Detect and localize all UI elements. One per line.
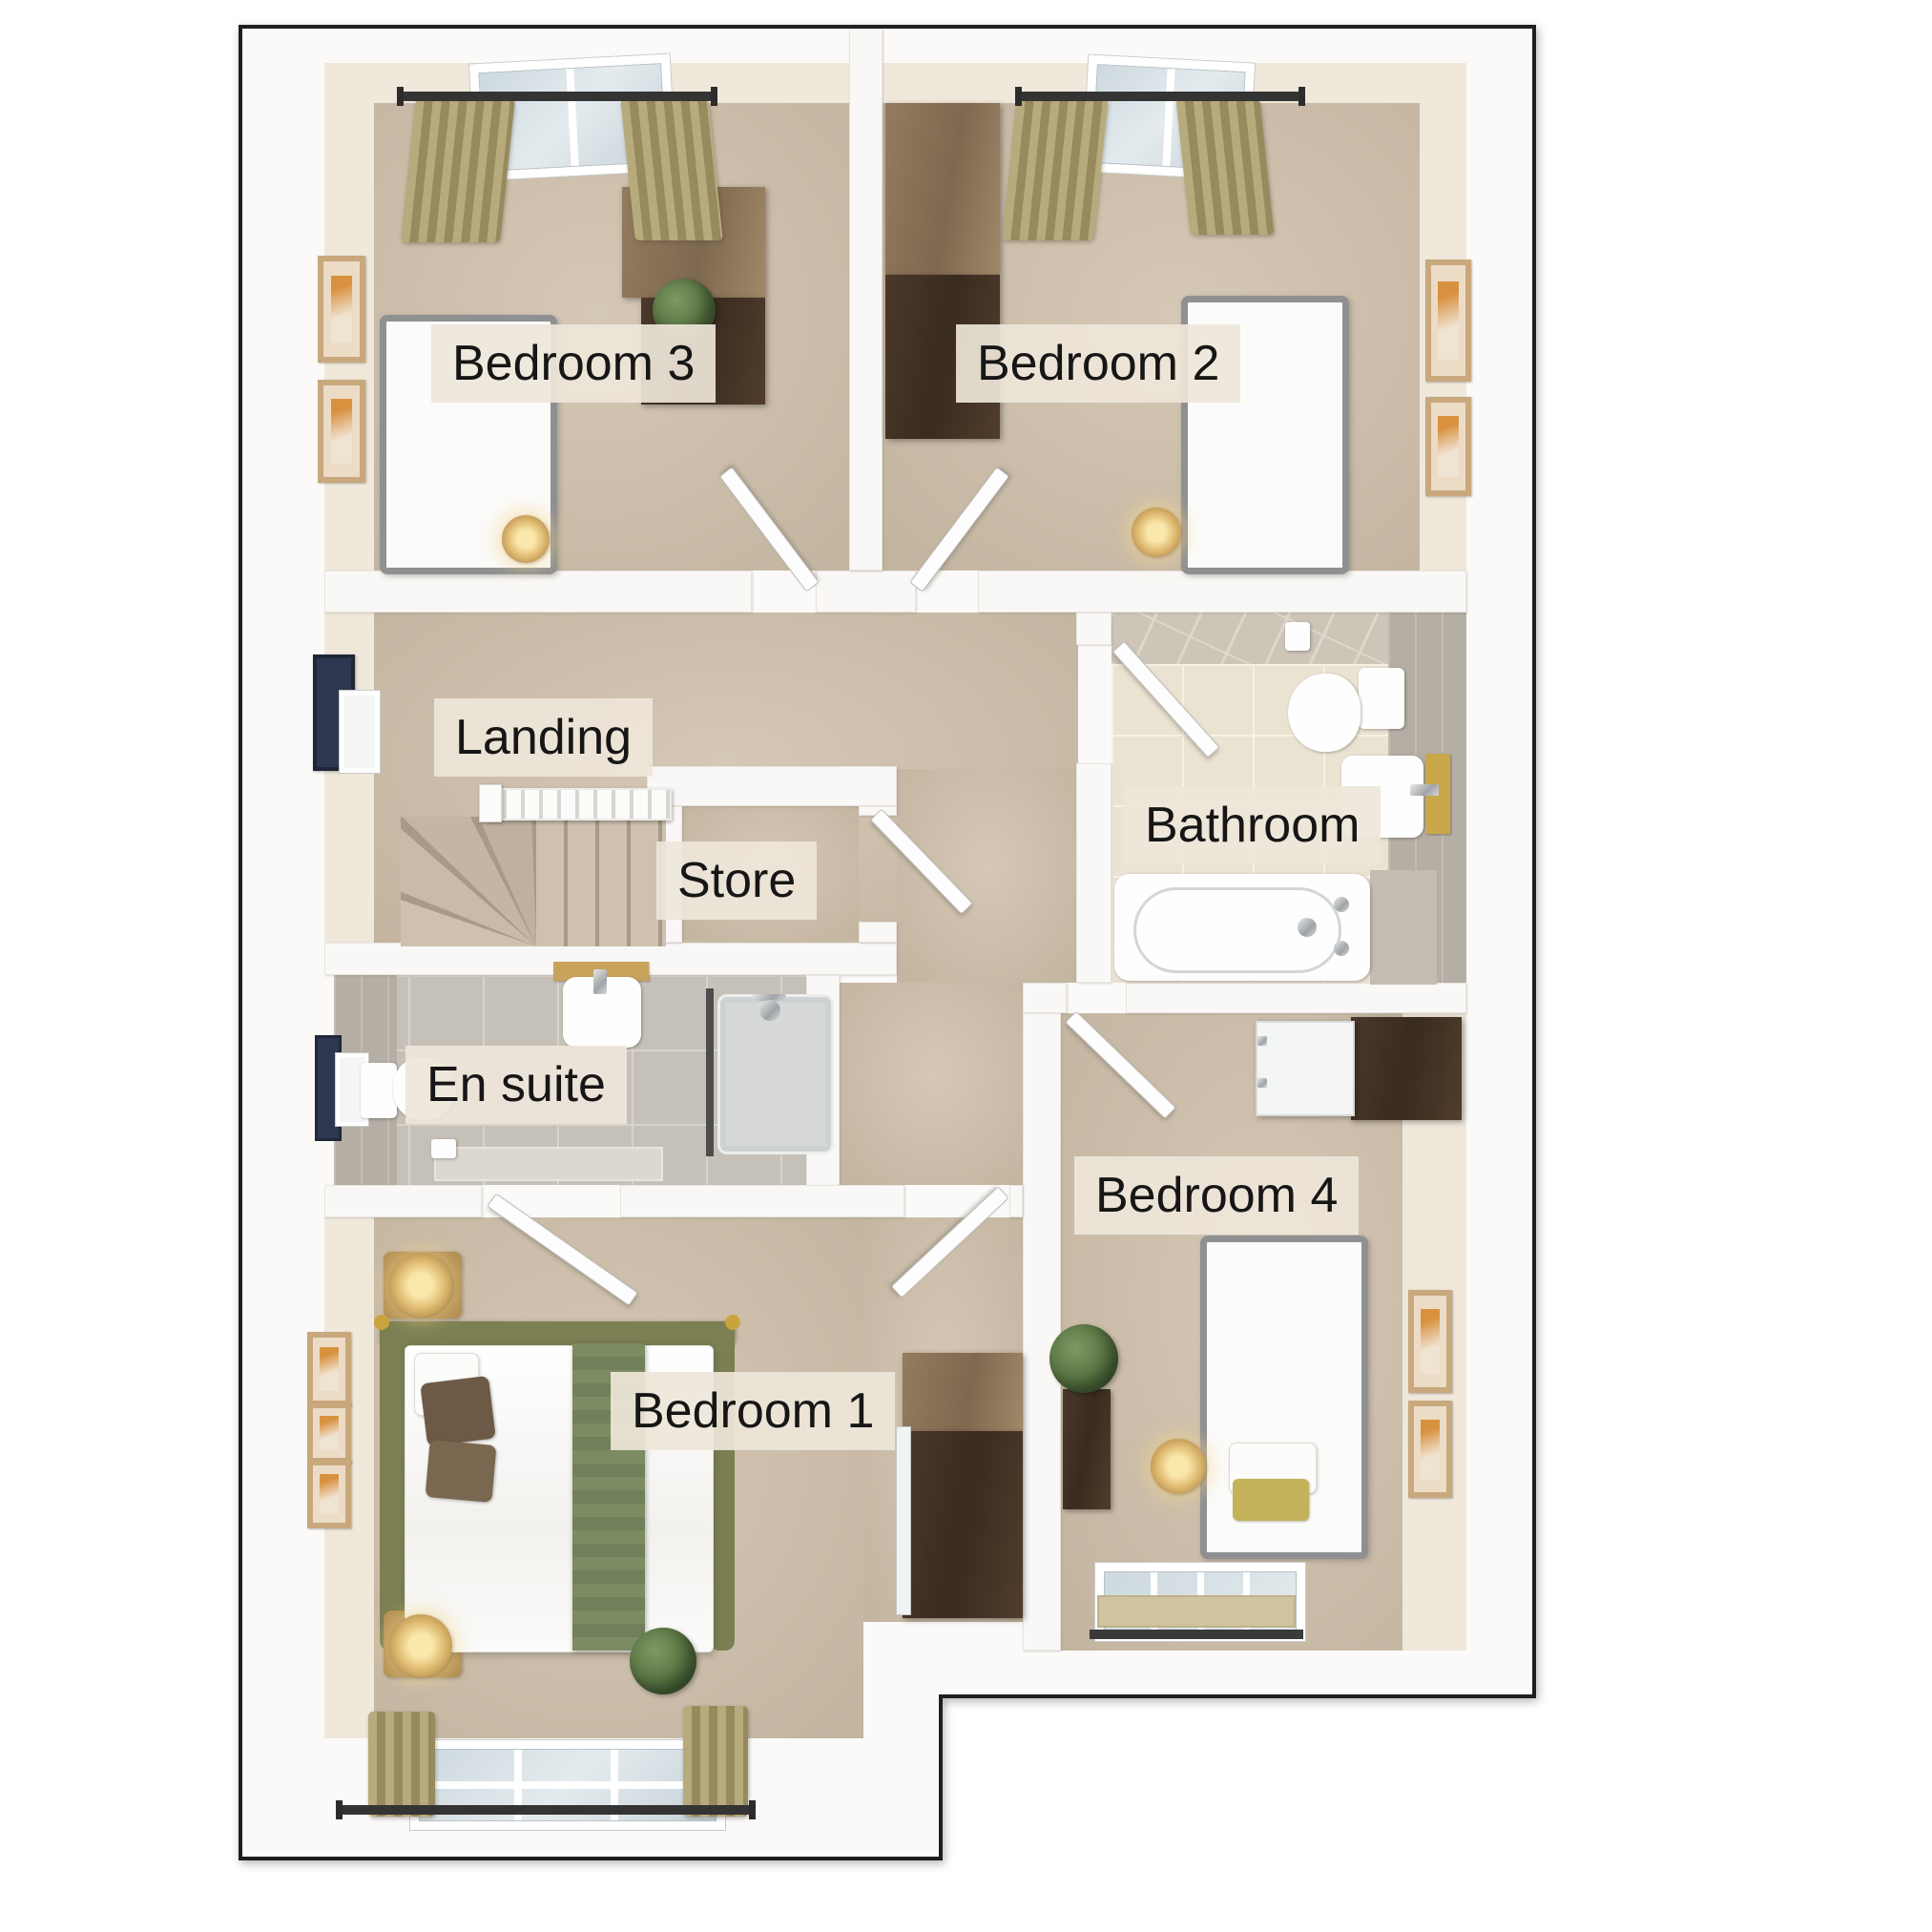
bedroom-4-picture-2 xyxy=(1408,1401,1452,1498)
bedroom-1-bed-rail-left xyxy=(380,1321,405,1651)
bedroom-1-finial-left xyxy=(374,1315,389,1330)
bathroom-bath-surround xyxy=(1370,870,1437,985)
bedroom-1-picture-3 xyxy=(307,1460,351,1528)
en-suite-toilet-roll-holder xyxy=(431,1139,456,1158)
bedroom-3-picture-1 xyxy=(318,256,365,363)
bedroom-3-picture-2 xyxy=(318,380,365,483)
bedroom-1-finial-right xyxy=(725,1315,740,1330)
bedroom-4-dresser-mirror-doors xyxy=(1256,1021,1355,1116)
bedroom-1-lamp-bottom xyxy=(389,1614,452,1677)
bedroom-1-headboard xyxy=(380,1321,735,1348)
room-label-store: Store xyxy=(656,841,817,920)
bedroom-2-curtain-left xyxy=(1002,99,1109,240)
bedroom-4-picture-1 xyxy=(1408,1290,1452,1393)
bedroom-1-curtain-rod xyxy=(340,1805,752,1815)
en-suite-door xyxy=(487,1194,638,1306)
bedroom-1-picture-1 xyxy=(307,1332,351,1406)
en-suite-toilet-cistern xyxy=(361,1063,397,1118)
bedroom-1-curtain-right xyxy=(683,1706,748,1817)
bedroom-1-picture-2 xyxy=(307,1402,351,1464)
bedroom-3-door xyxy=(719,467,820,592)
bathroom-bath-tap-2 xyxy=(1334,941,1349,956)
bedroom-4-plant xyxy=(1049,1324,1118,1393)
bedroom-2-picture-2 xyxy=(1425,397,1471,496)
bedroom-4-window-sill xyxy=(1090,1630,1303,1639)
bedroom-4-dresser-wood xyxy=(1351,1017,1462,1120)
bedroom-1-wardrobe-top xyxy=(903,1353,1023,1431)
bedroom-1-wardrobe-mirror xyxy=(897,1427,910,1614)
bathroom-toilet-bowl xyxy=(1288,674,1361,752)
bedroom-4-dresser-hinge-1 xyxy=(1257,1036,1267,1046)
room-label-bathroom: Bathroom xyxy=(1124,786,1381,864)
room-label-landing: Landing xyxy=(434,698,653,777)
bedroom-2-door xyxy=(909,467,1009,592)
bathroom-bath-drain xyxy=(1298,918,1317,937)
bathroom-door xyxy=(1112,641,1220,758)
bedroom-1-wardrobe xyxy=(903,1431,1023,1618)
room-label-bedroom-2: Bedroom 2 xyxy=(956,324,1240,403)
bathroom-bath-tap-1 xyxy=(1334,897,1349,912)
bedroom-1-lamp-top xyxy=(389,1254,452,1317)
bedroom-1-cushion-1 xyxy=(420,1376,496,1446)
landing-window xyxy=(340,691,380,773)
room-label-bedroom-4: Bedroom 4 xyxy=(1074,1156,1359,1235)
room-label-en-suite: En suite xyxy=(405,1046,627,1124)
bedroom-4-door xyxy=(1065,1010,1176,1119)
bedroom-3-curtain-right xyxy=(620,99,723,240)
bathroom-toilet-cistern xyxy=(1359,668,1404,729)
bedroom-1-cushion-2 xyxy=(426,1440,497,1503)
bathroom-basin-tap xyxy=(1410,784,1439,796)
bedroom-4-window-blind xyxy=(1097,1595,1296,1628)
bedroom-2-curtain-right xyxy=(1176,99,1275,235)
bedroom-4-chest xyxy=(1063,1389,1111,1509)
en-suite-shower-screen xyxy=(706,988,714,1156)
bedroom-3-bedside-lamp xyxy=(502,515,550,563)
bedroom-1-window xyxy=(410,1740,725,1830)
en-suite-basin-tap xyxy=(593,969,607,994)
bedroom-3-curtain-rod xyxy=(401,92,714,101)
bedroom-2-bedside-lamp xyxy=(1132,508,1181,557)
room-label-bedroom-1: Bedroom 1 xyxy=(611,1372,895,1450)
bedroom-3-curtain-left xyxy=(401,99,515,242)
bedroom-2-picture-1 xyxy=(1425,260,1471,382)
bedroom-2-wardrobe-top xyxy=(885,103,1000,275)
room-label-bedroom-3: Bedroom 3 xyxy=(431,324,716,403)
en-suite-shower-head xyxy=(759,1000,780,1021)
bedroom-1-plant xyxy=(630,1628,696,1694)
bathroom-toilet-roll-holder xyxy=(1285,622,1310,651)
bedroom-1-curtain-left xyxy=(368,1712,435,1817)
store-door xyxy=(870,809,973,915)
bedroom-4-cushion xyxy=(1233,1479,1309,1521)
bedroom-1-door xyxy=(891,1186,1009,1298)
bedroom-4-dresser-hinge-2 xyxy=(1257,1078,1267,1088)
bedroom-2-curtain-rod xyxy=(1019,92,1301,101)
bedroom-4-bedside-lamp xyxy=(1151,1439,1206,1494)
floor-plan: Bedroom 3 Bedroom 2 Landing Store Bathro… xyxy=(0,0,1932,1932)
